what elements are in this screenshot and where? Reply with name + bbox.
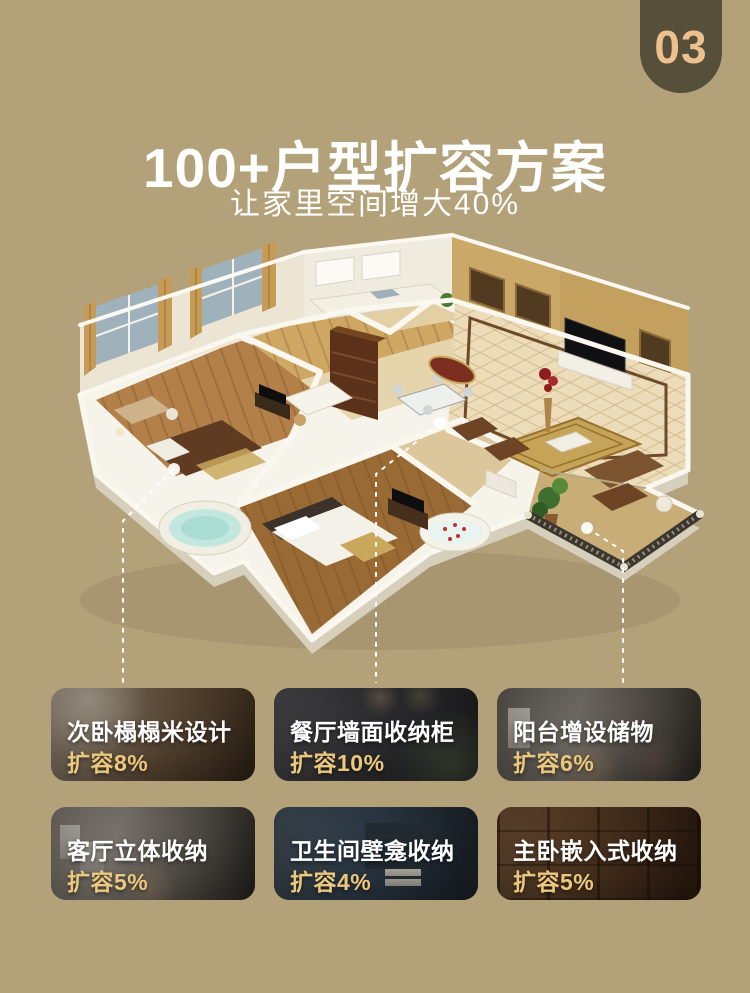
card-title: 卫生间壁龛收纳 (290, 832, 455, 866)
balcony-plant (552, 478, 568, 494)
card-value: 扩容5% (513, 863, 594, 897)
card-title: 主卧嵌入式收纳 (513, 832, 678, 866)
floor-lamp (116, 428, 124, 436)
jacuzzi-center (181, 516, 229, 540)
feature-card-dining: 餐厅墙面收纳柜 扩容10% (274, 688, 478, 781)
card-value: 扩容5% (67, 863, 148, 897)
bookshelf (330, 330, 378, 420)
card-value: 扩容4% (290, 863, 371, 897)
leader-dot-1 (168, 463, 180, 475)
card-title: 餐厅墙面收纳柜 (290, 713, 455, 747)
desk-chair (294, 414, 306, 426)
feature-card-livingroom: 客厅立体收纳 扩容5% (51, 807, 255, 900)
card-title: 客厅立体收纳 (67, 832, 208, 866)
feature-cards: 次卧榻榻米设计 扩容8% 餐厅墙面收纳柜 扩容10% 阳台增设储物 扩容6% 客… (51, 688, 701, 900)
card-value: 扩容10% (290, 744, 385, 778)
leader-dot-3 (581, 522, 593, 534)
dining-chair (393, 385, 403, 395)
red-flowers (544, 384, 552, 392)
dining-chair (463, 387, 473, 397)
kitchen-cabinet-upper (362, 251, 400, 280)
poster: 03 100+户型扩容方案 让家里空间增大40% (0, 0, 750, 993)
card-title: 次卧榻榻米设计 (67, 713, 232, 747)
railing-post (524, 511, 532, 519)
card-title: 阳台增设储物 (513, 713, 654, 747)
card-value: 扩容6% (513, 744, 594, 778)
feature-card-tatami: 次卧榻榻米设计 扩容8% (51, 688, 255, 781)
feature-card-bathroom: 卫生间壁龛收纳 扩容4% (274, 807, 478, 900)
balcony-table (656, 496, 672, 512)
dining-chair (423, 405, 433, 415)
card-value: 扩容8% (67, 744, 148, 778)
feature-card-masterbedroom: 主卧嵌入式收纳 扩容5% (497, 807, 701, 900)
side-table (166, 408, 178, 420)
railing-post (696, 510, 704, 518)
feature-card-balcony: 阳台增设储物 扩容6% (497, 688, 701, 781)
leader-dot-2 (434, 417, 446, 429)
